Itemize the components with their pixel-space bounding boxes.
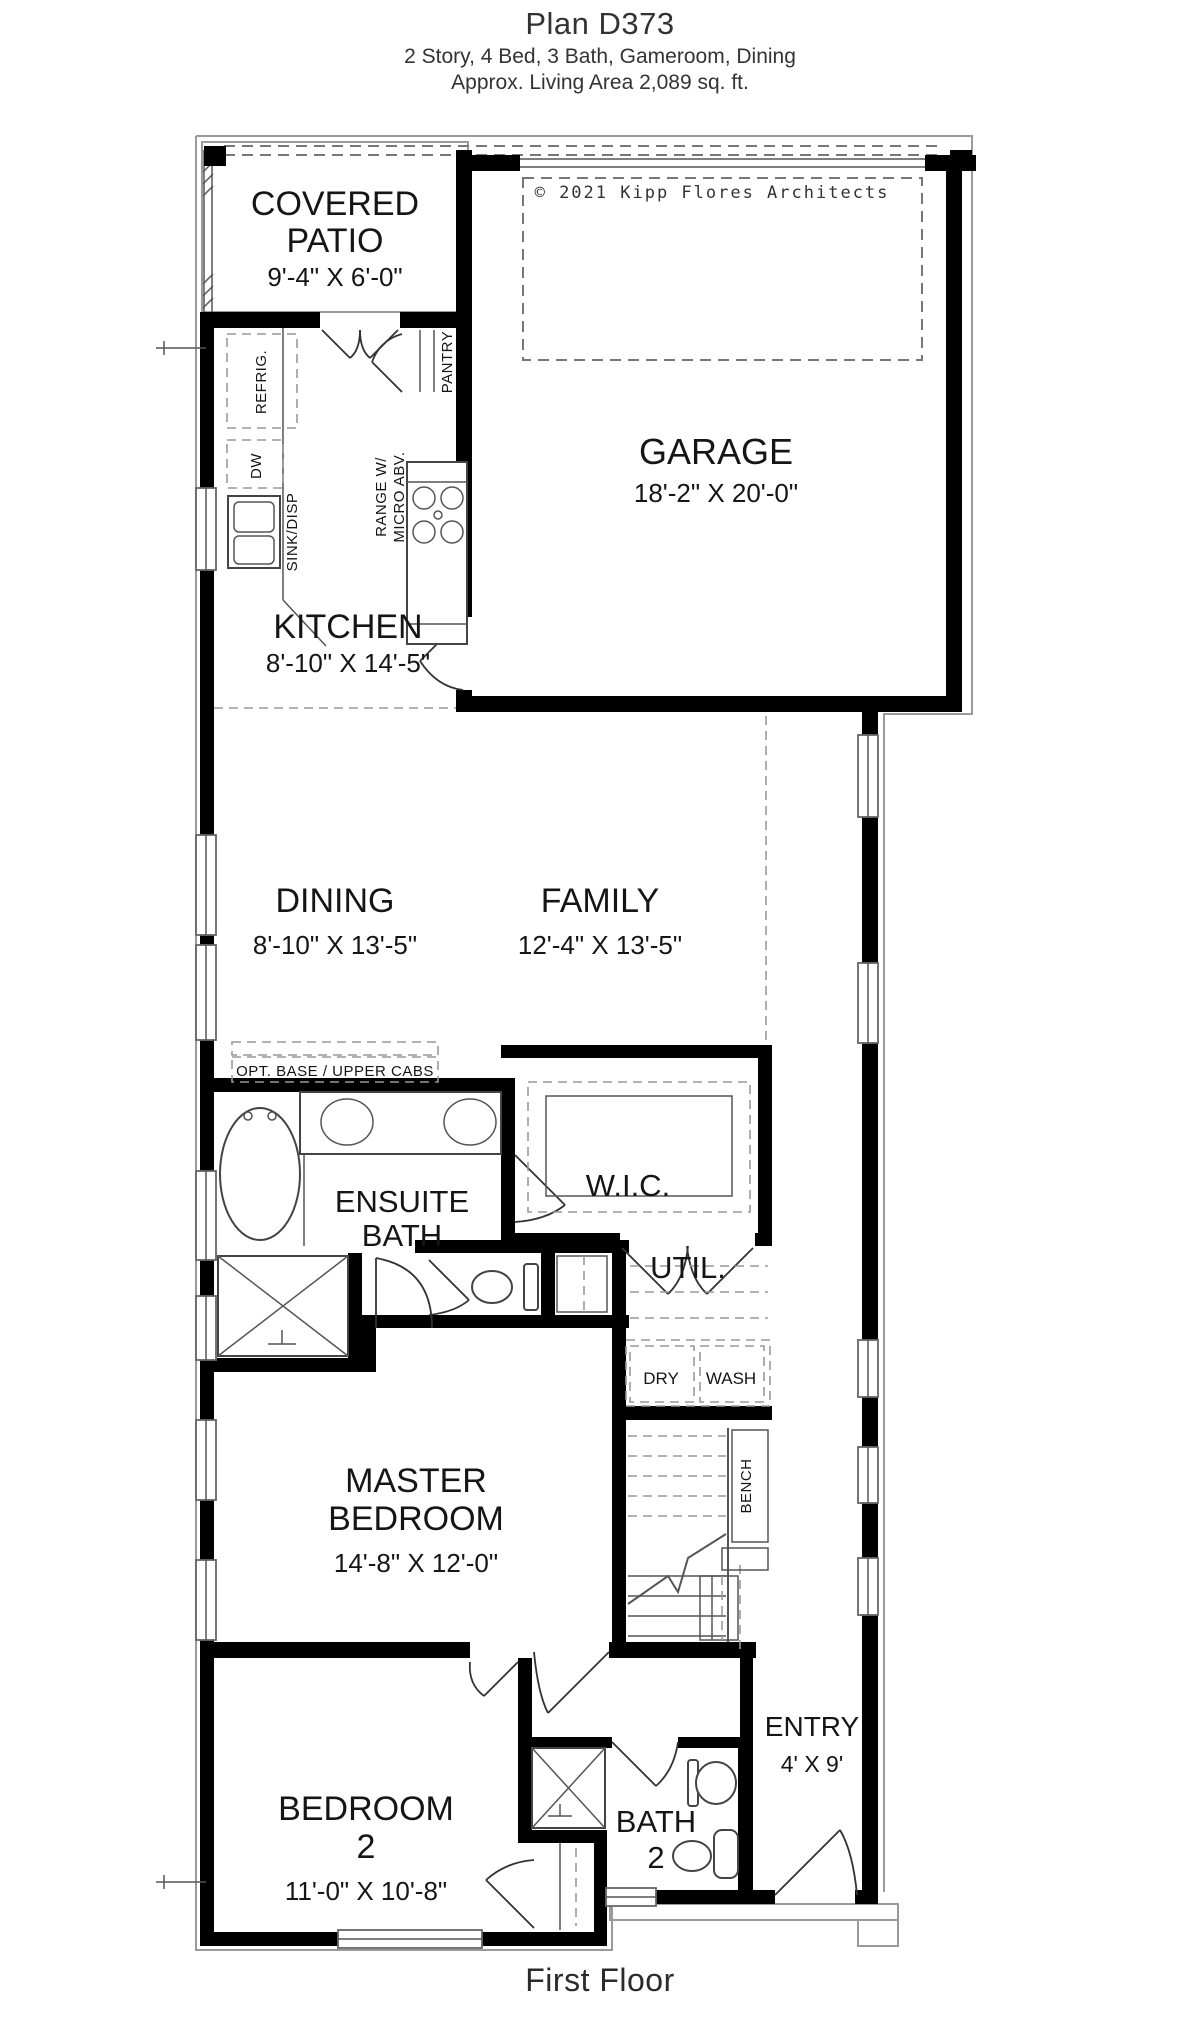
window bbox=[196, 945, 216, 1040]
window bbox=[196, 835, 216, 935]
master-toilet bbox=[472, 1264, 538, 1310]
svg-text:PATIO: PATIO bbox=[287, 222, 384, 260]
bedroom2-closet bbox=[560, 1843, 576, 1930]
dims-family: 12'-4" X 13'-5" bbox=[518, 930, 682, 960]
label-ensuite-bath: ENSUITE bbox=[335, 1184, 469, 1219]
svg-text:2: 2 bbox=[647, 1840, 664, 1875]
dims-bedroom2: 11'-0" X 10'-8" bbox=[285, 1876, 447, 1906]
understair-closet bbox=[700, 1576, 738, 1640]
label-wash: WASH bbox=[706, 1369, 756, 1388]
dims-covered-patio: 9'-4" X 6'-0" bbox=[267, 262, 402, 292]
bath2-toilet bbox=[688, 1760, 736, 1806]
label-dining: DINING bbox=[276, 882, 395, 920]
window bbox=[858, 1447, 878, 1503]
master-bedroom-door bbox=[534, 1652, 609, 1713]
label-bench: BENCH bbox=[738, 1458, 755, 1513]
label-wic: W.I.C. bbox=[586, 1168, 670, 1203]
label-entry: ENTRY bbox=[765, 1711, 860, 1742]
label-bedroom2: BEDROOM bbox=[278, 1790, 454, 1828]
dims-entry: 4' X 9' bbox=[781, 1751, 844, 1777]
patio-double-door bbox=[322, 330, 398, 358]
label-pantry: PANTRY bbox=[439, 331, 456, 393]
window bbox=[196, 1560, 216, 1640]
dims-dining: 8'-10" X 13'-5" bbox=[253, 930, 417, 960]
svg-text:BEDROOM: BEDROOM bbox=[328, 1500, 504, 1538]
label-covered-patio: COVERED bbox=[251, 185, 419, 223]
garage-corner-post bbox=[950, 150, 972, 170]
label-bath2: BATH bbox=[616, 1804, 696, 1839]
vanity-double-sink bbox=[300, 1092, 501, 1154]
porch-step bbox=[858, 1920, 898, 1946]
label-family: FAMILY bbox=[541, 882, 659, 920]
window bbox=[858, 1558, 878, 1615]
window bbox=[858, 1340, 878, 1397]
bath2-door bbox=[612, 1742, 678, 1786]
opt-upper-cabs bbox=[232, 1042, 438, 1055]
svg-text:BATH: BATH bbox=[362, 1218, 442, 1253]
label-kitchen: KITCHEN bbox=[273, 608, 422, 646]
window bbox=[196, 1171, 216, 1260]
window bbox=[338, 1930, 482, 1948]
label-range-1: RANGE W/ bbox=[373, 457, 390, 537]
window bbox=[196, 1420, 216, 1500]
dims-master-bedroom: 14'-8" X 12'-0" bbox=[334, 1548, 498, 1578]
label-master-bedroom: MASTER bbox=[345, 1462, 487, 1500]
window bbox=[196, 1296, 216, 1360]
label-garage: GARAGE bbox=[639, 431, 793, 472]
floor-name: First Floor bbox=[0, 1962, 1200, 1999]
floor-plan-page: Plan D373 2 Story, 4 Bed, 3 Bath, Gamero… bbox=[0, 0, 1200, 2024]
bedroom2-door bbox=[470, 1662, 518, 1696]
floor-plan-drawing: © 2021 Kipp Flores Architects COVERED PA… bbox=[0, 0, 1200, 2024]
front-entry-door bbox=[775, 1830, 857, 1895]
window bbox=[858, 735, 878, 817]
linen-closet bbox=[557, 1256, 607, 1312]
patio-corner-post bbox=[204, 146, 226, 166]
label-util: UTIL. bbox=[650, 1250, 726, 1285]
bathtub bbox=[220, 1108, 300, 1240]
bath2-shower bbox=[532, 1748, 605, 1828]
pantry-shelves bbox=[420, 330, 434, 392]
label-dw: DW bbox=[248, 453, 265, 479]
label-dry: DRY bbox=[643, 1369, 679, 1388]
pantry-door bbox=[372, 334, 402, 392]
window bbox=[606, 1888, 656, 1906]
toilet-room-door bbox=[429, 1260, 469, 1315]
garage-door-track bbox=[523, 178, 922, 360]
centerline-ticks bbox=[156, 341, 206, 1889]
kitchen-sink bbox=[228, 496, 280, 568]
bedroom2-closet-door bbox=[486, 1860, 534, 1928]
label-sink-disp: SINK/DISP bbox=[284, 493, 301, 572]
label-refrig: REFRIG. bbox=[253, 350, 270, 414]
window bbox=[196, 488, 216, 570]
label-range-2: MICRO ABV. bbox=[391, 451, 408, 542]
svg-text:2: 2 bbox=[357, 1828, 376, 1866]
window bbox=[858, 963, 878, 1043]
label-opt-cabs: OPT. BASE / UPPER CABS bbox=[236, 1063, 434, 1080]
dims-garage: 18'-2" X 20'-0" bbox=[634, 478, 798, 508]
dims-kitchen: 8'-10" X 14'-5" bbox=[266, 648, 430, 678]
master-shower bbox=[218, 1256, 348, 1356]
copyright-note: © 2021 Kipp Flores Architects bbox=[535, 183, 890, 203]
